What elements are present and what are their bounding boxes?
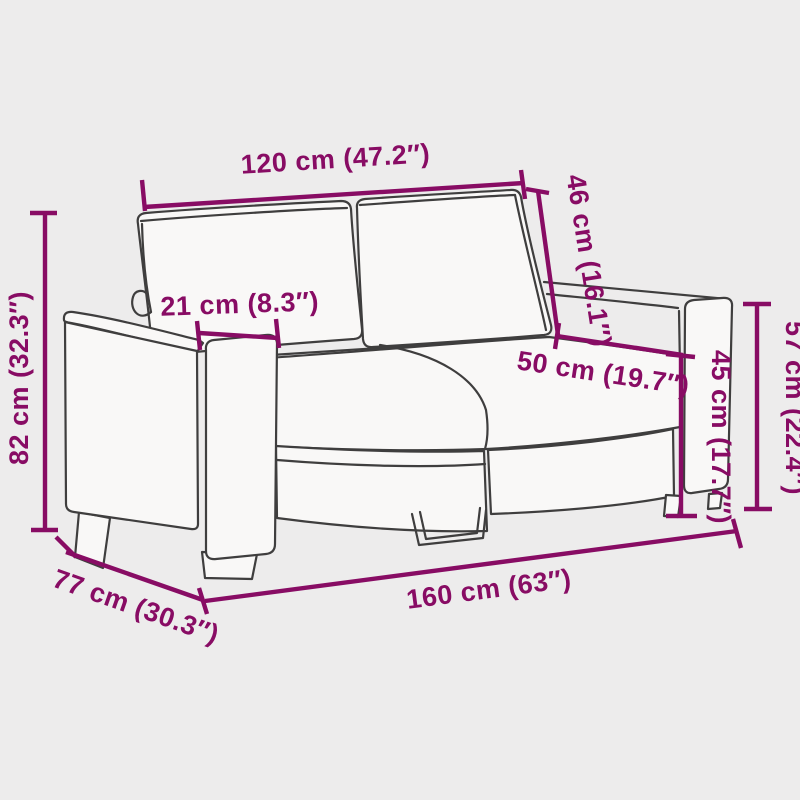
label-seat-height: 45 cm (17.7″) <box>706 350 736 524</box>
left-arm-front-cap <box>206 335 277 559</box>
diagram-canvas: 120 cm (47.2″) 46 cm (16.1″) 21 cm (8.3″… <box>0 0 800 800</box>
dim-line-armrest-height <box>743 304 772 509</box>
right-arm-top-inner-edge <box>547 294 678 308</box>
seat-surface <box>268 337 681 450</box>
label-total-height: 82 cm (32.3″) <box>4 291 34 465</box>
label-backrest-width: 120 cm (47.2″) <box>240 138 431 180</box>
seat-front-face-left <box>276 446 487 531</box>
label-armrest-width: 21 cm (8.3″) <box>160 286 319 322</box>
sofa-dimension-diagram: 120 cm (47.2″) 46 cm (16.1″) 21 cm (8.3″… <box>0 0 800 800</box>
back-cushion-right <box>357 190 551 347</box>
label-backrest-height: 46 cm (16.1″) <box>560 172 617 349</box>
left-arm-outer-face <box>65 322 198 529</box>
label-armrest-height: 57 cm (22.4″) <box>780 321 800 495</box>
leg-back-right <box>664 495 681 517</box>
dim-line-total-height <box>30 213 58 530</box>
